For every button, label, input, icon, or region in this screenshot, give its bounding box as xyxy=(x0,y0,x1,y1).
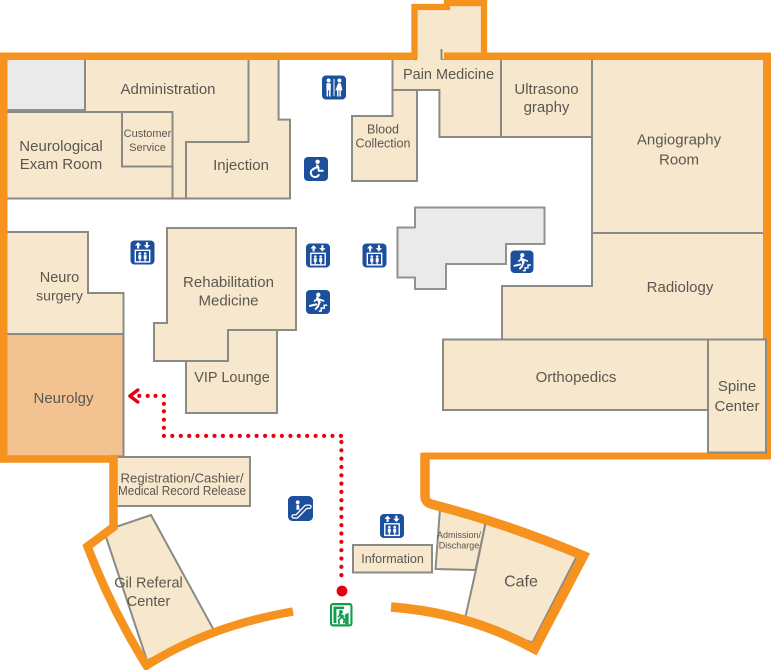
svg-text:Cafe: Cafe xyxy=(504,574,538,591)
svg-text:Gil Referal: Gil Referal xyxy=(114,576,183,592)
svg-text:Angiography: Angiography xyxy=(637,132,722,149)
svg-text:Room: Room xyxy=(659,152,699,169)
svg-text:Center: Center xyxy=(714,398,759,415)
svg-text:Customer: Customer xyxy=(124,128,172,140)
svg-text:Blood: Blood xyxy=(367,123,399,137)
svg-text:graphy: graphy xyxy=(524,99,570,116)
svg-text:Neuro: Neuro xyxy=(40,270,80,286)
svg-text:VIP Lounge: VIP Lounge xyxy=(194,370,270,386)
svg-text:Neurological: Neurological xyxy=(19,138,102,155)
svg-text:Exam Room: Exam Room xyxy=(20,156,103,173)
svg-text:Radiology: Radiology xyxy=(647,279,714,296)
svg-text:Neurolgy: Neurolgy xyxy=(33,390,94,407)
svg-text:Spine: Spine xyxy=(718,378,756,395)
svg-text:Ultrasono: Ultrasono xyxy=(514,81,578,98)
svg-text:Service: Service xyxy=(129,142,166,154)
svg-text:Collection: Collection xyxy=(356,137,411,151)
svg-text:Rehabilitation: Rehabilitation xyxy=(183,274,274,291)
svg-text:Pain Medicine: Pain Medicine xyxy=(403,67,494,83)
svg-text:Medicine: Medicine xyxy=(198,293,258,310)
svg-text:Medical Record Release: Medical Record Release xyxy=(118,483,246,498)
svg-text:Admission/: Admission/ xyxy=(437,530,482,540)
svg-text:Information: Information xyxy=(361,552,424,566)
svg-text:surgery: surgery xyxy=(36,288,83,304)
svg-text:Center: Center xyxy=(127,594,171,610)
svg-text:Orthopedics: Orthopedics xyxy=(536,369,617,386)
svg-text:Administration: Administration xyxy=(120,81,215,98)
svg-text:Injection: Injection xyxy=(213,157,269,174)
svg-text:Discharge: Discharge xyxy=(439,541,480,551)
